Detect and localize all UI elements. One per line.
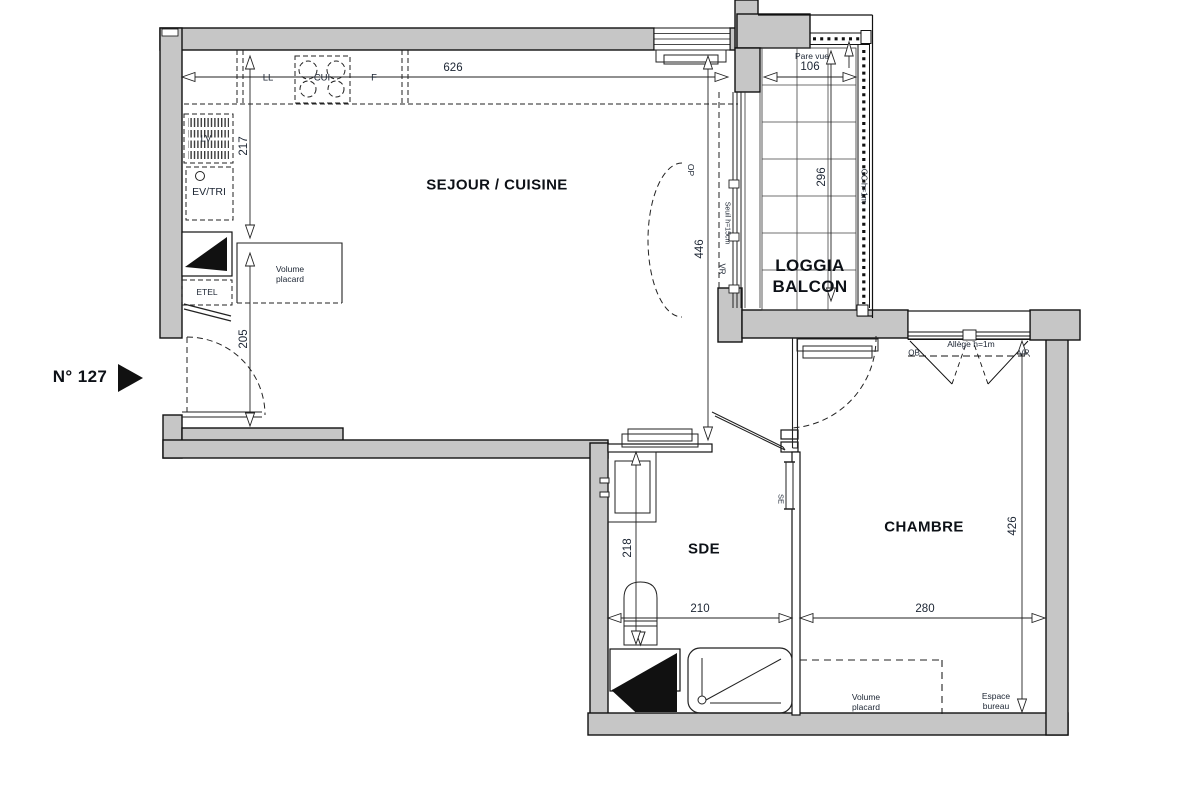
room-label-chambre: CHAMBRE xyxy=(884,519,963,536)
dimension-205: 205 xyxy=(238,329,250,348)
dimension-426: 426 xyxy=(1007,516,1019,535)
annotation-ob: OB xyxy=(908,349,920,358)
annotation-seuil: Seuil h=15cm xyxy=(724,202,731,245)
annotation-op: OP xyxy=(686,164,696,176)
dimension-280: 280 xyxy=(915,603,934,615)
entry-arrow-icon xyxy=(118,364,143,392)
unit-number: N° 127 xyxy=(53,367,108,387)
dimension-446: 446 xyxy=(694,239,706,258)
sejour-north-window xyxy=(654,28,730,50)
dimension-626: 626 xyxy=(443,62,462,74)
technical-shaft-sde xyxy=(610,649,680,712)
appliance-f: F xyxy=(371,73,377,84)
entry-door xyxy=(182,337,265,417)
sde-door xyxy=(712,412,785,450)
dimension-296: 296 xyxy=(816,167,828,186)
appliance-cui: CUI xyxy=(314,73,330,84)
dimension-106: 106 xyxy=(800,61,819,73)
appliance-ev-tri: EV/TRI xyxy=(192,186,226,198)
dimension-217: 217 xyxy=(238,136,250,155)
appliance-ll: LL xyxy=(263,73,274,84)
room-label-loggia: LOGGIA BALCON xyxy=(772,255,847,298)
room-label-sde: SDE xyxy=(688,541,720,558)
radiators xyxy=(622,50,878,447)
appliance-etel: ETEL xyxy=(196,287,217,297)
room-label-sejour: SEJOUR / CUISINE xyxy=(426,177,567,194)
appliance-lv: LV xyxy=(201,134,212,145)
floor-plan-drawing xyxy=(0,0,1187,800)
annotation-vr-sejour: VR xyxy=(718,263,727,274)
entry-coat-lines xyxy=(184,304,231,321)
annotation-allege: Allège h=1m xyxy=(947,339,995,349)
floor-plan: N° 127 SEJOUR / CUISINE LOGGIA BALCON SD… xyxy=(0,0,1187,800)
loggia-line2: BALCON xyxy=(772,276,847,297)
annotation-espace-bureau: Espace bureau xyxy=(969,691,1023,711)
exterior-walls xyxy=(160,0,1080,735)
pare-vue-arrow xyxy=(845,42,853,68)
sink-symbol xyxy=(196,172,205,181)
loggia-line1: LOGGIA xyxy=(772,255,847,276)
annotation-volume-placard-sejour: Volume placard xyxy=(263,264,317,284)
annotation-vr-chambre: VR xyxy=(1018,349,1029,358)
wall-notch xyxy=(162,29,178,36)
dimension-210: 210 xyxy=(690,603,709,615)
dimension-218: 218 xyxy=(622,538,634,557)
annotation-volume-placard-chambre: Volume placard xyxy=(839,692,893,712)
technical-shaft-sejour xyxy=(182,232,232,276)
annotation-gc: GC h=1m xyxy=(860,169,869,203)
annotation-se: SE xyxy=(777,494,786,504)
annotation-pare-vue: Pare vue xyxy=(795,51,829,61)
chambre-door xyxy=(791,336,876,448)
